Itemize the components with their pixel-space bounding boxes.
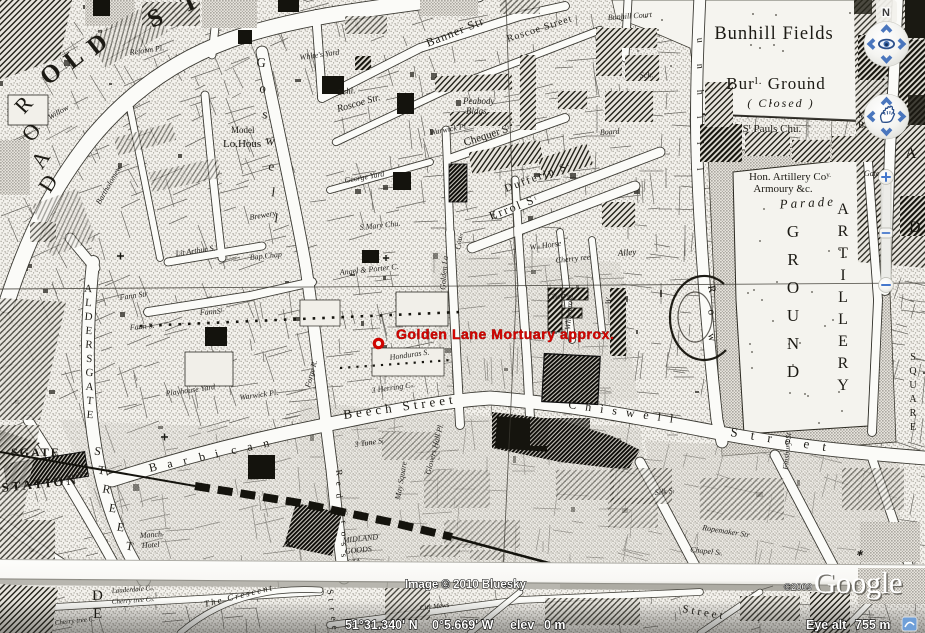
svg-text:D: D (787, 362, 799, 381)
svg-text:N: N (882, 7, 890, 19)
svg-text:Y: Y (837, 377, 849, 394)
svg-text:Schl.: Schl. (337, 85, 356, 97)
svg-text:N: N (787, 334, 799, 353)
svg-text:Q: Q (909, 366, 917, 377)
svg-text:Hon. Artillery Coy.: Hon. Artillery Coy. (749, 171, 831, 183)
svg-text:Bldgs.: Bldgs. (466, 106, 489, 116)
svg-text:L: L (85, 297, 93, 310)
svg-text:R: R (838, 223, 849, 240)
svg-text:A: A (905, 145, 917, 162)
svg-text:755 m: 755 m (855, 618, 890, 632)
svg-text:T: T (86, 395, 94, 408)
svg-text:elev: elev (510, 618, 534, 632)
svg-text:E: E (838, 333, 848, 350)
svg-text:A: A (837, 201, 849, 218)
svg-text:D: D (84, 311, 93, 324)
svg-text:E: E (910, 422, 916, 433)
svg-text:Lo.Hous: Lo.Hous (223, 138, 261, 150)
svg-text:G: G (85, 367, 94, 380)
svg-text:Peabody: Peabody (462, 96, 495, 106)
svg-text:R: R (838, 355, 849, 372)
svg-text:E: E (86, 409, 94, 422)
svg-text:( Closed ): ( Closed ) (747, 96, 814, 110)
svg-text:SGATE: SGATE (11, 445, 61, 459)
svg-text:A.: A. (282, 535, 294, 550)
svg-text:Hotel: Hotel (141, 540, 161, 550)
svg-text:E: E (85, 325, 93, 338)
svg-text:R: R (787, 250, 799, 269)
svg-text:S: S (86, 353, 93, 365)
svg-text:U: U (787, 306, 799, 325)
svg-text:Sch.: Sch. (640, 70, 654, 80)
svg-text:U: U (909, 380, 917, 391)
svg-text:Bunhill Fields: Bunhill Fields (714, 24, 833, 44)
svg-text:S: S (910, 352, 916, 363)
svg-text:L: L (838, 311, 848, 328)
svg-text:Gate: Gate (864, 169, 880, 178)
svg-text:©2009: ©2009 (784, 582, 812, 593)
svg-text:0°5.669' W: 0°5.669' W (432, 618, 494, 632)
svg-text:Parade: Parade (778, 194, 836, 212)
svg-text:A: A (84, 283, 93, 296)
svg-text:O: O (787, 278, 799, 297)
svg-text:A: A (85, 381, 94, 394)
svg-text:n: n (694, 63, 705, 69)
svg-text:A: A (909, 394, 917, 405)
svg-text:u: u (694, 37, 705, 43)
svg-text:Burl. Ground: Burl. Ground (726, 74, 826, 93)
svg-text:I: I (840, 267, 845, 284)
svg-text:51°31.340' N: 51°31.340' N (345, 618, 418, 632)
svg-text:Board: Board (600, 127, 621, 137)
svg-text:R: R (910, 408, 917, 419)
svg-text:Google: Google (814, 565, 902, 600)
svg-text:T: T (838, 245, 848, 262)
svg-text:Manchr: Manchr (139, 529, 165, 540)
svg-text:L: L (838, 289, 848, 306)
svg-text:St Pauls Chu.: St Pauls Chu. (743, 123, 802, 135)
svg-text:Image © 2010 Bluesky: Image © 2010 Bluesky (405, 579, 527, 591)
svg-text:Alley: Alley (616, 247, 636, 258)
svg-text:Golden Lane Mortuary approx.: Golden Lane Mortuary approx. (396, 326, 614, 342)
svg-text:Armoury &c.: Armoury &c. (753, 183, 813, 195)
svg-text:Model: Model (231, 125, 255, 135)
svg-text:D: D (909, 219, 921, 236)
svg-text:0 m: 0 m (544, 618, 566, 632)
svg-text:G: G (787, 222, 799, 241)
svg-text:Eye alt: Eye alt (806, 618, 847, 632)
svg-text:h: h (694, 89, 705, 95)
